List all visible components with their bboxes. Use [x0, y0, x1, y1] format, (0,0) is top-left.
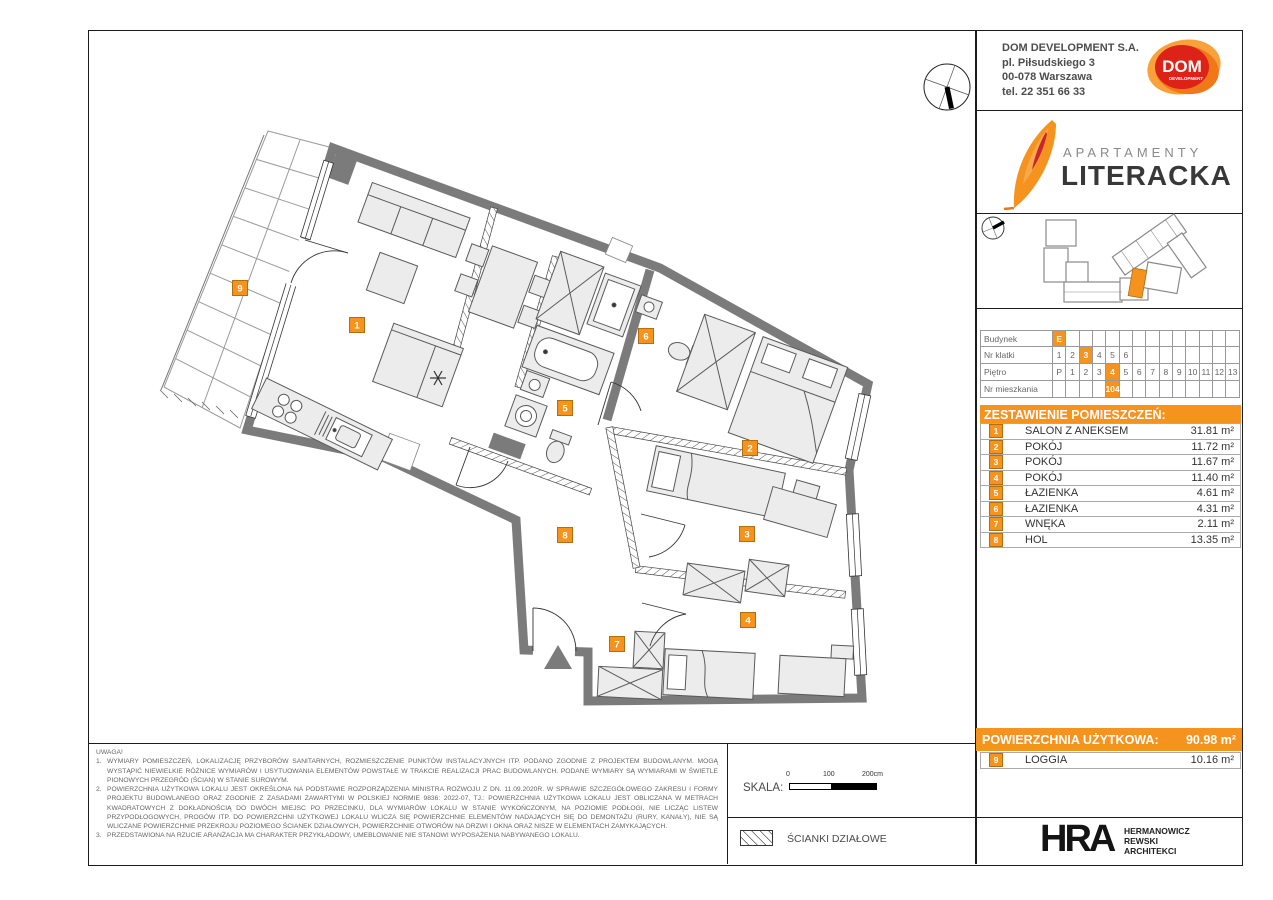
usable-area-value: 90.98 m²	[1186, 733, 1236, 747]
room-list: 1SALON Z ANEKSEM31.81 m²2POKÓJ11.72 m²3P…	[980, 424, 1241, 548]
unit-table-row: Nr klatki123456	[980, 347, 1241, 364]
wardrobe-wneka-b	[597, 666, 662, 699]
note-item: 3.PRZEDSTAWIONA NA RZUCIE ARANŻACJA MA C…	[96, 831, 718, 840]
brand-apartamenty: APARTAMENTY	[1063, 145, 1202, 160]
company-info: DOM DEVELOPMENT S.A. pl. Piłsudskiego 3 …	[1002, 41, 1139, 99]
svg-text:4: 4	[745, 616, 751, 627]
room-schedule-header: ZESTAWIENIE POMIESZCZEŃ:	[980, 405, 1241, 424]
scale-bar	[789, 783, 877, 790]
room-row: 7WNĘKA2.11 m²	[980, 516, 1241, 533]
floor-plan-drawing: 123456789	[89, 31, 974, 742]
unit-table-row: BudynekE	[980, 330, 1241, 347]
company-name: DOM DEVELOPMENT S.A.	[1002, 41, 1139, 56]
notes-block: UWAGA! 1.WYMIARY POMIESZCZEŃ, LOKALIZACJ…	[96, 748, 718, 841]
wardrobe-room3-b	[745, 559, 789, 596]
room-row: 1SALON Z ANEKSEM31.81 m²	[980, 423, 1241, 440]
svg-text:8: 8	[562, 531, 567, 542]
company-phone: tel. 22 351 66 33	[1002, 85, 1139, 100]
dom-development-logo: DOM DEVELOPMENT	[1142, 36, 1226, 102]
note-item: 1.WYMIARY POMIESZCZEŃ, LOKALIZACJĘ PRZYB…	[96, 757, 718, 785]
room-badge-1: 1	[350, 318, 365, 333]
room-badge-4: 4	[741, 613, 756, 628]
scale-tick-0: 0	[786, 771, 790, 778]
brand-literacka: LITERACKA	[1061, 160, 1232, 192]
company-address2: 00-078 Warszawa	[1002, 70, 1139, 85]
scale-tick-100: 100	[823, 771, 835, 778]
site-minimap	[975, 213, 1242, 308]
usable-area-bar: POWIERZCHNIA UŻYTKOWA: 90.98 m²	[976, 728, 1242, 751]
plan-bottom-divider	[88, 743, 975, 744]
floorplan-sheet: 123456789 DOM DEVELOPMENT S.A. pl. Piłsu…	[0, 0, 1273, 900]
feather-icon	[990, 118, 1060, 210]
usable-area-label: POWIERZCHNIA UŻYTKOWA:	[982, 733, 1159, 747]
room-row: 8HOL13.35 m²	[980, 532, 1241, 549]
company-address1: pl. Piłsudskiego 3	[1002, 56, 1139, 71]
scale-tick-200: 200cm	[862, 771, 883, 778]
unit-table-row: PiętroP12345678910111213	[980, 364, 1241, 381]
svg-text:5: 5	[562, 404, 568, 415]
scale-label: SKALA:	[743, 782, 783, 794]
room-row: 2POKÓJ11.72 m²	[980, 439, 1241, 456]
partition-legend-label: ŚCIANKI DZIAŁOWE	[787, 833, 887, 845]
room-badge-9: 9	[233, 281, 248, 296]
wardrobe-wneka-a	[633, 631, 665, 669]
room-row: 5ŁAZIENKA4.61 m²	[980, 485, 1241, 502]
partition-hatch-swatch	[740, 830, 773, 846]
loggia-name: LOGGIA	[1025, 754, 1191, 766]
room-row: 3POKÓJ11.67 m²	[980, 454, 1241, 471]
room-badge-7: 7	[610, 637, 625, 652]
dom-logo-text: DOM	[1162, 57, 1202, 76]
room-row: 4POKÓJ11.40 m²	[980, 470, 1241, 487]
loggia-badge: 9	[989, 753, 1003, 767]
architect-name-lines: HERMANOWICZREWSKIARCHITEKCI	[1124, 826, 1190, 856]
bed-room4	[663, 649, 755, 700]
note-item: 2.POWIERZCHNIA UŻYTKOWA LOKALU JEST OKRE…	[96, 785, 718, 831]
room-badge-2: 2	[743, 441, 758, 456]
room-badge-8: 8	[558, 528, 573, 543]
svg-text:1: 1	[354, 321, 360, 332]
svg-text:7: 7	[614, 640, 619, 651]
dom-logo-subtext: DEVELOPMENT	[1169, 76, 1204, 81]
north-compass-icon	[924, 64, 970, 110]
svg-text:9: 9	[237, 284, 242, 295]
loggia-row: 9 LOGGIA 10.16 m²	[980, 753, 1241, 769]
room-badge-5: 5	[558, 401, 573, 416]
room-row: 6ŁAZIENKA4.31 m²	[980, 501, 1241, 518]
room-badge-6: 6	[639, 329, 654, 344]
notes-title: UWAGA!	[96, 748, 718, 757]
room-badge-3: 3	[740, 527, 755, 542]
svg-text:6: 6	[643, 332, 648, 343]
unit-table: BudynekENr klatki123456PiętroP1234567891…	[980, 330, 1241, 398]
unit-table-row: Nr mieszkania104	[980, 381, 1241, 398]
svg-text:3: 3	[744, 530, 749, 541]
legend-top-divider	[727, 817, 1243, 818]
notes-scale-divider	[727, 743, 728, 864]
architect-logo: HRA	[1040, 818, 1113, 861]
svg-text:2: 2	[747, 444, 752, 455]
loggia-area: 10.16 m²	[1191, 754, 1234, 766]
minimap-compass-icon	[982, 217, 1004, 239]
